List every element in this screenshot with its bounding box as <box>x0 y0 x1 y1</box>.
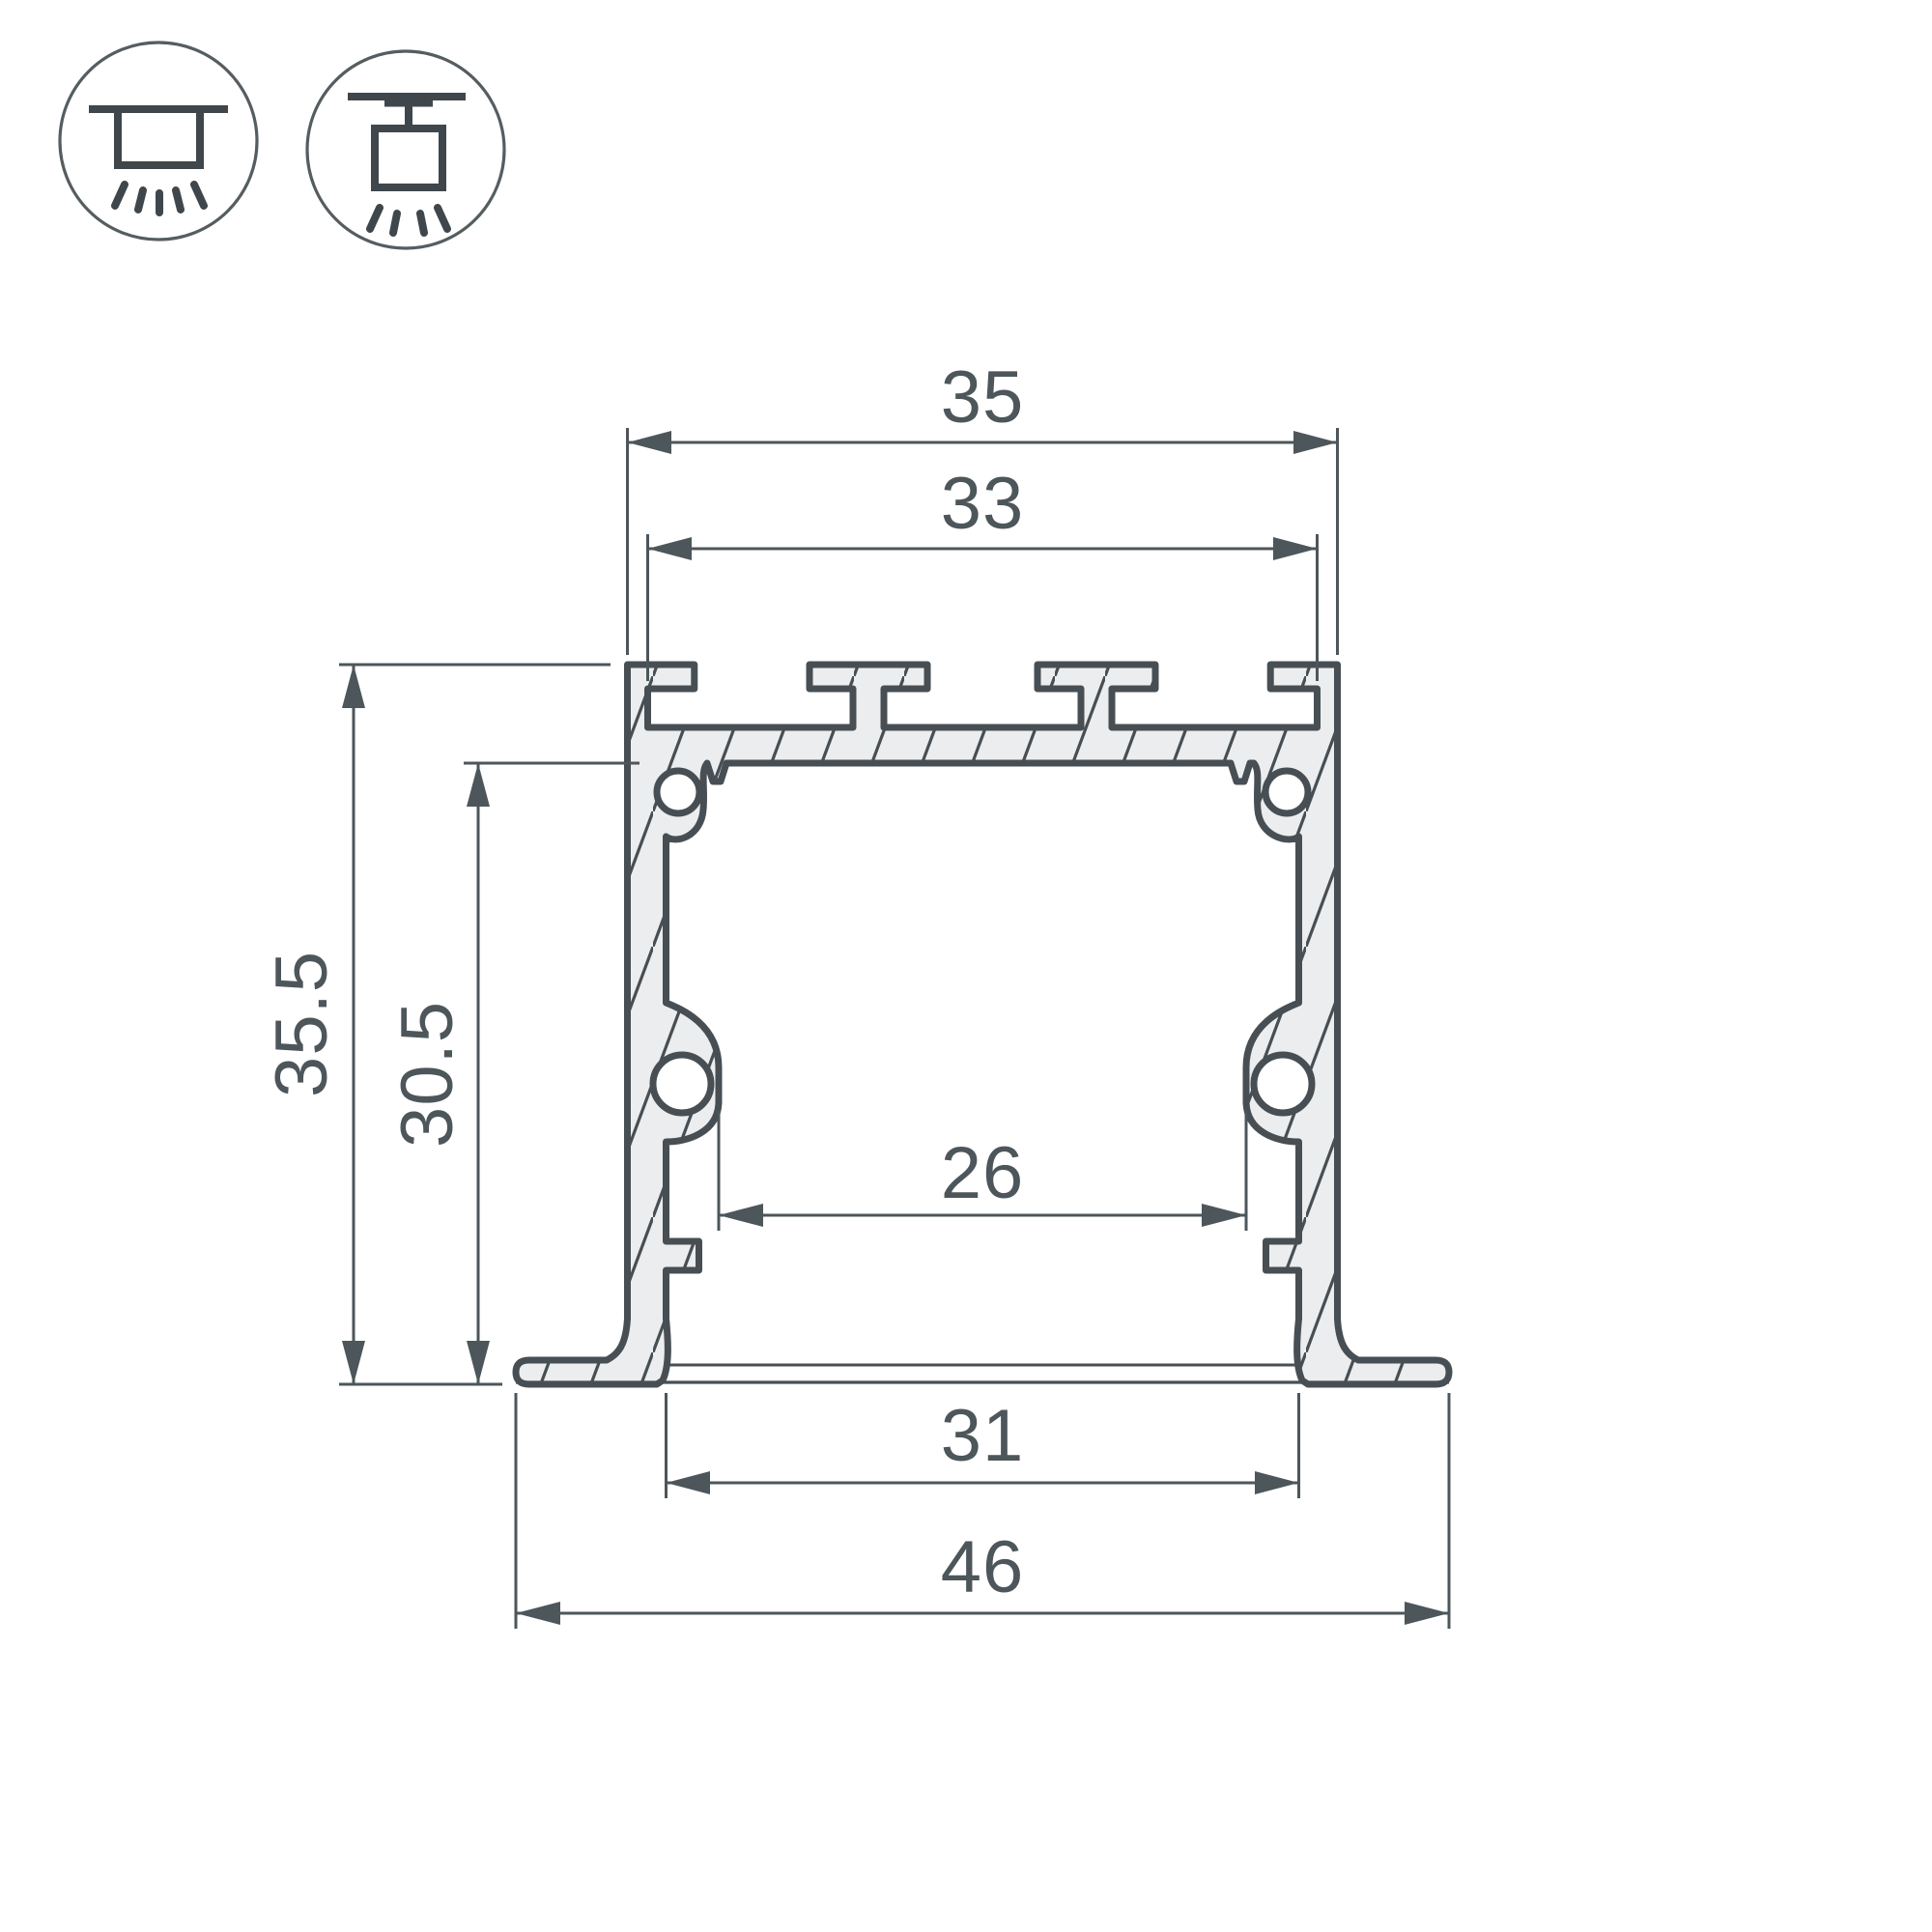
mount-type-icons <box>60 43 504 248</box>
light-rays-icon <box>115 185 204 213</box>
drawing-canvas: 35 33 35.5 30.5 26 <box>0 0 1932 1932</box>
arrowhead <box>648 537 693 560</box>
light-rays-icon <box>370 208 447 233</box>
arrowhead <box>467 1341 490 1384</box>
arrowhead <box>628 431 672 454</box>
technical-drawing: 35 33 35.5 30.5 26 <box>0 0 1932 1932</box>
arrowhead <box>1405 1602 1449 1625</box>
arrowhead <box>1255 1471 1299 1494</box>
arrowhead <box>719 1204 763 1227</box>
dimension-label: 35 <box>941 356 1025 439</box>
icon-circle <box>307 51 504 248</box>
dimension-top-inner-width: 33 <box>648 463 1318 681</box>
dimension-label: 33 <box>941 463 1025 545</box>
arrowhead <box>467 763 490 807</box>
arrowhead <box>667 1471 711 1494</box>
dimension-inner-height: 30.5 <box>386 763 639 1384</box>
profile-hatching <box>516 665 1449 1384</box>
recessed-fixture-box <box>118 109 200 165</box>
arrowhead <box>1202 1204 1246 1227</box>
arrowhead <box>1293 431 1338 454</box>
surface-mount-icon <box>307 51 504 248</box>
dimension-label: 46 <box>941 1526 1025 1608</box>
dimension-label: 35.5 <box>261 951 343 1097</box>
profile-cross-section <box>516 665 1449 1384</box>
surface-fixture-box <box>375 128 442 187</box>
dimension-label: 30.5 <box>386 1001 469 1148</box>
arrowhead <box>1273 537 1318 560</box>
dimension-label: 31 <box>941 1395 1025 1477</box>
arrowhead <box>342 665 365 708</box>
dimension-label: 26 <box>941 1132 1025 1214</box>
dimension-inner-width: 26 <box>719 1111 1246 1231</box>
arrowhead <box>516 1602 560 1625</box>
recessed-mount-icon <box>60 43 257 240</box>
dimension-bottom-opening-width: 31 <box>667 1393 1299 1498</box>
arrowhead <box>342 1341 365 1384</box>
